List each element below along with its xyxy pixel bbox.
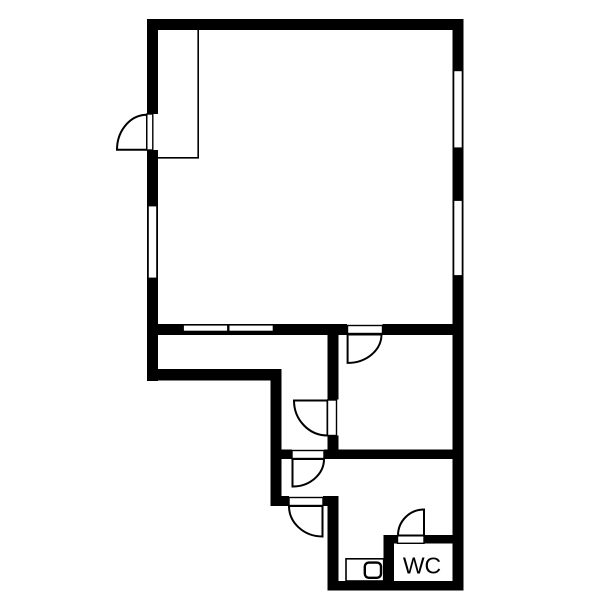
svg-text:WC: WC [403, 553, 441, 579]
